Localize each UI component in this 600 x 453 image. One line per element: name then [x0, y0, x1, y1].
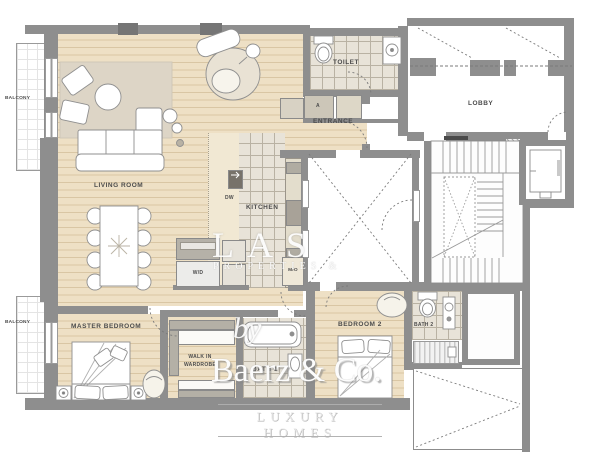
- room-label-balcony-bottom: BALCONY: [5, 320, 30, 325]
- floor-lamp: [177, 140, 184, 147]
- living-room-furniture: [59, 27, 260, 290]
- terrace-void-cross: [416, 371, 520, 447]
- label-wd: W/D: [176, 270, 220, 276]
- patio-void-cross: [309, 154, 411, 283]
- sofa-seat: [78, 130, 162, 156]
- side-table: [172, 123, 182, 133]
- pillow: [103, 385, 129, 399]
- stair-landing-marker: [444, 136, 468, 140]
- master-bedroom-furniture: [56, 342, 165, 400]
- room-label-living-room: LIVING ROOM: [94, 182, 143, 189]
- watermark-rule-bottom: [218, 436, 382, 437]
- shower-head: [448, 347, 456, 357]
- room-label-wardrobe: WARDROBE: [164, 362, 236, 368]
- door-swing-bedroom2: [326, 286, 348, 308]
- room-label-entrance: ENTRANCE: [313, 118, 353, 125]
- room-label-bedroom2: BEDROOM 2: [338, 321, 382, 328]
- door-swing-lobby: [548, 112, 568, 132]
- door-swing-patio: [382, 200, 412, 230]
- door-swing-master: [150, 308, 178, 336]
- staircase: [431, 136, 523, 283]
- room-label-balcony-top: BALCONY: [5, 96, 30, 101]
- table-centerpiece: [108, 235, 130, 257]
- room-label-walk-in: WALK IN: [164, 354, 236, 360]
- room-label-master-bedroom: MASTER BEDROOM: [71, 323, 141, 330]
- side-table: [163, 109, 177, 123]
- label-mo: M/O: [282, 268, 304, 273]
- room-label-toilet: TOILET: [333, 59, 359, 66]
- door-swing-toilet: [348, 72, 371, 95]
- watermark-rule-top: [218, 404, 382, 405]
- label-closet-a: A: [316, 103, 320, 109]
- label-dw: DW: [225, 195, 234, 201]
- sofa-back: [76, 154, 164, 171]
- pillow: [75, 385, 101, 399]
- closet-diagonals: [418, 28, 560, 58]
- reading-lamp: [246, 44, 260, 58]
- room-label-bath2: BATH 2: [414, 322, 434, 328]
- dishwasher-arrow: [231, 172, 239, 178]
- room-label-lobby: LOBBY: [468, 100, 493, 107]
- door-swing-entrance: [340, 121, 367, 148]
- plan-graphics: [0, 0, 600, 453]
- door-swing-bath1: [281, 292, 305, 316]
- room-label-kitchen: KITCHEN: [246, 204, 278, 211]
- coffee-table: [95, 84, 121, 110]
- floor-plan: BALCONY BALCONY LIVING ROOM TOILET A ENT…: [0, 0, 600, 453]
- bedroom2-furniture: [338, 293, 407, 398]
- room-label-bath1: BATH 1: [252, 366, 278, 373]
- armchair: [143, 370, 165, 398]
- sink: [443, 297, 455, 329]
- elevator: [519, 140, 572, 205]
- pillow: [342, 339, 365, 354]
